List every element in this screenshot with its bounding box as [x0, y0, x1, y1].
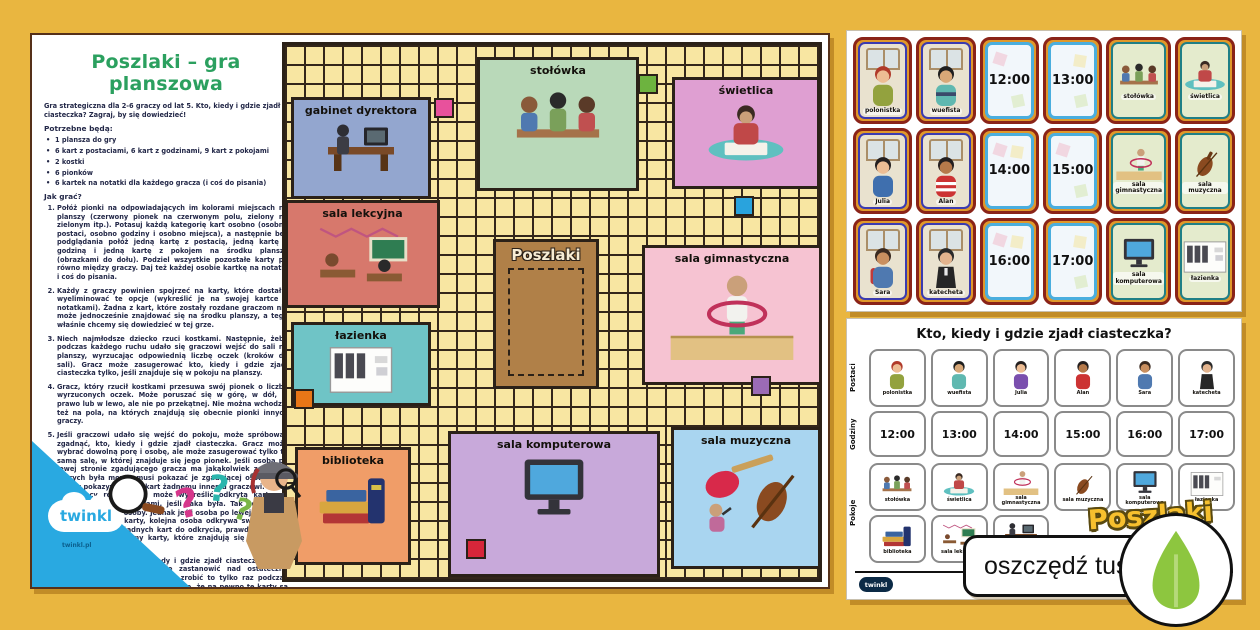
board-room-biblioteka: biblioteka — [295, 447, 411, 565]
needed-item: 6 kart z postaciami, 6 kart z godzinami,… — [46, 147, 288, 156]
twinkl-resource-preview: Poszlaki – gra planszowa Gra strategiczn… — [0, 0, 1260, 630]
room-label: stołówka — [530, 65, 586, 77]
time-label: 17:00 — [1052, 254, 1093, 269]
board-room-sala-gimnastyczna: sala gimnastyczna — [642, 245, 822, 385]
room-label: świetlica — [719, 85, 774, 97]
card-room-swietlica: świetlica — [1175, 37, 1235, 124]
child-drawing-icon — [701, 100, 791, 164]
worksheet-godziny-row: 12:00 13:00 14:00 15:00 16:00 17:00 — [869, 411, 1235, 457]
time-label: 12:00 — [989, 73, 1030, 88]
worksheet-cell: Sara — [1116, 349, 1173, 407]
sticky-note-decoration — [1010, 145, 1024, 159]
needed-item: 6 kartek na notatki dla każdego gracza (… — [46, 179, 288, 188]
save-ink-label: oszczędź tusz — [984, 552, 1141, 581]
board-room-stolowka: stołówka — [477, 57, 639, 191]
room-label: sala muzyczna — [701, 435, 791, 447]
start-square-red — [466, 539, 486, 559]
twinkl-logo: twinkl — [48, 500, 124, 532]
computer-icon — [508, 454, 600, 520]
child-drawing-icon — [940, 471, 978, 497]
sticky-note-decoration — [1074, 184, 1088, 198]
row-label-postaci: Postaci — [849, 349, 865, 407]
music-icon — [692, 450, 800, 536]
time-label: 16:00 — [989, 254, 1030, 269]
worksheet-cell: Julia — [993, 349, 1050, 407]
step-item: Gracz, który rzucił kostkami przesuwa sw… — [57, 383, 288, 426]
howto-heading: Jak grać? — [44, 192, 288, 201]
needed-item: 1 plansza do gry — [46, 136, 288, 145]
card-person-polonistka: polonistka — [853, 37, 912, 124]
worksheet-cell: 14:00 — [993, 411, 1050, 457]
time-label: 13:00 — [1052, 73, 1093, 88]
worksheet-cell: stołówka — [869, 463, 926, 511]
worksheet-cell: polonistka — [869, 349, 926, 407]
room-label: sala komputerowa — [497, 439, 611, 451]
sticky-note-decoration — [992, 142, 1007, 157]
worksheet-cell: biblioteka — [869, 515, 926, 563]
worksheet-cell: katecheta — [1178, 349, 1235, 407]
game-board: gabinet dyrektora stołówka świetlica sal… — [282, 42, 822, 582]
card-label: Alan — [936, 199, 955, 205]
person-icon — [1134, 360, 1156, 390]
sticky-note-decoration — [1074, 275, 1088, 289]
card-label: sala komputerowa — [1113, 272, 1164, 285]
card-time-14: 14:00 — [980, 128, 1039, 215]
worksheet-cell: sala gimnastyczna — [993, 463, 1050, 511]
office-icon — [323, 120, 399, 174]
bathroom-icon — [1182, 240, 1228, 274]
card-person-wuefista: wuefista — [916, 37, 975, 124]
sticky-note-decoration — [1055, 142, 1070, 157]
needed-list: 1 plansza do gry 6 kart z postaciami, 6 … — [46, 136, 288, 188]
room-label: łazienka — [335, 330, 387, 342]
room-label: sala gimnastyczna — [675, 253, 790, 265]
board-room-gabinet-dyrektora: gabinet dyrektora — [291, 97, 431, 199]
card-time-17: 17:00 — [1043, 218, 1102, 305]
row-label-pokoje: Pokoje — [849, 463, 865, 563]
person-icon — [931, 155, 961, 199]
card-label: wuefista — [930, 108, 963, 114]
bathroom-icon — [1188, 471, 1226, 497]
time-label: 14:00 — [989, 163, 1030, 178]
start-square-pink — [434, 98, 454, 118]
leaf-badge-circle — [1119, 513, 1233, 627]
card-time-13: 13:00 — [1043, 37, 1102, 124]
card-placement-area — [508, 268, 584, 376]
needed-item: 6 pionków — [46, 169, 288, 178]
board-center-poszlaki: Poszlaki — [493, 239, 599, 389]
child-drawing-icon — [1182, 58, 1228, 92]
card-label: łazienka — [1189, 276, 1221, 282]
gym-hoop-icon — [1116, 146, 1162, 180]
card-label: stołówka — [1121, 94, 1156, 100]
sticky-note-decoration — [1074, 94, 1088, 108]
room-label: sala lekcyjna — [322, 208, 402, 220]
room-label: gabinet dyrektora — [305, 105, 417, 117]
cards-sheet-page: polonistka wuefista 12:00 13:00 stołówka… — [846, 30, 1242, 312]
worksheet-cell: 15:00 — [1054, 411, 1111, 457]
classroom-icon — [309, 223, 417, 293]
step-item: Każdy z graczy powinien spojrzeć na kart… — [57, 287, 288, 330]
worksheet-title: Kto, kiedy i gdzie zjadł ciasteczka? — [847, 327, 1241, 342]
card-room-sala-komputerowa: sala komputerowa — [1106, 218, 1171, 305]
person-icon — [931, 64, 961, 108]
canteen-icon — [508, 80, 608, 154]
card-person-julia: Julia — [853, 128, 912, 215]
sticky-note-decoration — [1073, 235, 1087, 249]
sticky-note-decoration — [1010, 235, 1024, 249]
computer-icon — [1126, 469, 1164, 495]
intro-text: Gra strategiczna dla 2-6 graczy od lat 5… — [44, 102, 288, 119]
board-center-label: Poszlaki — [511, 246, 580, 264]
twinkl-logo-text: twinkl — [60, 507, 112, 525]
row-label-godziny: Godziny — [849, 411, 865, 457]
twinkl-mini-logo: twinkl — [859, 577, 893, 592]
person-icon — [948, 360, 970, 390]
card-time-12: 12:00 — [980, 37, 1039, 124]
card-room-stolowka: stołówka — [1106, 37, 1171, 124]
needed-item: 2 kostki — [46, 158, 288, 167]
card-label: Julia — [873, 199, 892, 205]
step-item: Niech najmłodsze dziecko rzuci kostkami.… — [57, 335, 288, 378]
needed-heading: Potrzebne będą: — [44, 124, 288, 133]
start-square-purple — [751, 376, 771, 396]
worksheet-cell: świetlica — [931, 463, 988, 511]
person-icon — [1010, 360, 1032, 390]
violin-icon — [1064, 471, 1102, 497]
card-label: polonistka — [863, 108, 902, 114]
gym-hoop-icon — [667, 268, 797, 360]
card-label: Sara — [873, 290, 892, 296]
gym-hoop-icon — [1002, 469, 1040, 495]
card-person-sara: Sara — [853, 218, 912, 305]
books-icon — [311, 470, 395, 530]
twinkl-site-text: twinkl.pl — [62, 542, 91, 549]
card-person-katecheta: katecheta — [916, 218, 975, 305]
card-time-16: 16:00 — [980, 218, 1039, 305]
start-square-orange — [294, 389, 314, 409]
canteen-icon — [1116, 58, 1162, 92]
card-label: katecheta — [927, 290, 965, 296]
card-label: świetlica — [1188, 94, 1222, 100]
computer-icon — [1116, 236, 1162, 270]
step-item: Połóż pionki na odpowiadających im kolor… — [57, 204, 288, 282]
card-room-sala-gimnastyczna: sala gimnastyczna — [1106, 128, 1171, 215]
sticky-note-decoration — [1073, 54, 1087, 68]
person-icon — [886, 360, 908, 390]
worksheet-cell: 17:00 — [1178, 411, 1235, 457]
card-label: sala gimnastyczna — [1113, 182, 1164, 195]
start-square-green — [638, 74, 658, 94]
instructions-page: Poszlaki – gra planszowa Gra strategiczn… — [30, 33, 830, 589]
page-title: Poszlaki – gra planszowa — [44, 51, 288, 95]
board-room-sala-lekcyjna: sala lekcyjna — [285, 200, 440, 308]
card-room-lazienka: łazienka — [1175, 218, 1235, 305]
leaf-icon — [1144, 527, 1208, 613]
card-person-alan: Alan — [916, 128, 975, 215]
board-room-swietlica: świetlica — [672, 77, 820, 189]
person-icon — [868, 64, 898, 108]
bathroom-icon — [316, 345, 406, 395]
person-icon — [931, 246, 961, 290]
card-time-15: 15:00 — [1043, 128, 1102, 215]
person-icon — [1072, 360, 1094, 390]
worksheet-cell: wuefista — [931, 349, 988, 407]
room-label: biblioteka — [322, 455, 384, 467]
worksheet-cell: Alan — [1054, 349, 1111, 407]
card-label: sala muzyczna — [1182, 182, 1228, 195]
worksheet-cell: 13:00 — [931, 411, 988, 457]
person-icon — [868, 155, 898, 199]
person-icon — [868, 246, 898, 290]
worksheet-postaci-row: polonistka wuefista Julia Alan Sara kate… — [869, 349, 1235, 407]
canteen-icon — [878, 471, 916, 497]
sticky-note-decoration — [992, 51, 1007, 66]
worksheet-cell: 16:00 — [1116, 411, 1173, 457]
start-square-blue — [734, 196, 754, 216]
sticky-note-decoration — [1011, 94, 1025, 108]
card-room-sala-muzyczna: sala muzyczna — [1175, 128, 1235, 215]
person-icon — [1196, 360, 1218, 390]
books-icon — [878, 523, 916, 549]
worksheet-cell: 12:00 — [869, 411, 926, 457]
violin-icon — [1182, 146, 1228, 180]
board-room-sala-muzyczna: sala muzyczna — [671, 427, 821, 569]
time-label: 15:00 — [1052, 163, 1093, 178]
sticky-note-decoration — [992, 233, 1007, 248]
